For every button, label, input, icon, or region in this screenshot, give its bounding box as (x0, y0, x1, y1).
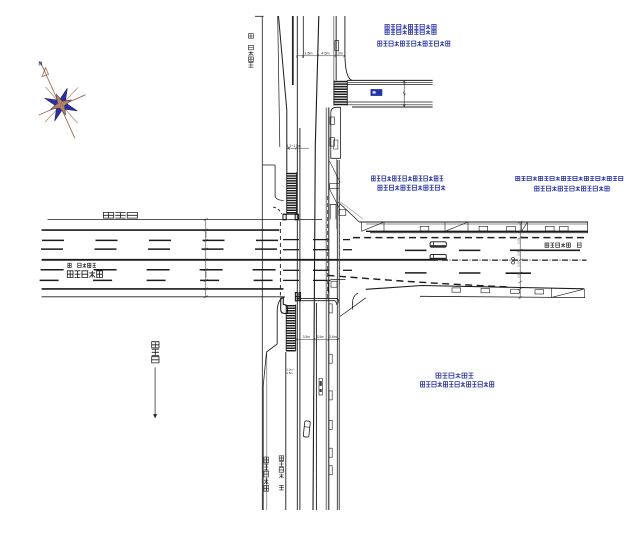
svg-text:2.0m: 2.0m (335, 51, 343, 55)
svg-text:4.5m: 4.5m (322, 51, 330, 55)
svg-text:3.25: 3.25 (204, 231, 208, 237)
svg-text:1.2~1.5m: 1.2~1.5m (287, 144, 301, 148)
svg-text:2.6m: 2.6m (329, 335, 337, 339)
svg-text:3.25: 3.25 (516, 261, 520, 267)
svg-text:3.25: 3.25 (204, 271, 208, 277)
svg-text:N: N (39, 62, 43, 68)
svg-text:1.5m: 1.5m (286, 371, 293, 375)
svg-text:3.25: 3.25 (516, 250, 520, 256)
svg-text:3.25: 3.25 (516, 272, 520, 278)
svg-text:3.5m: 3.5m (317, 335, 325, 339)
svg-text:3.25: 3.25 (516, 238, 520, 244)
svg-text:3.5m: 3.5m (303, 335, 311, 339)
svg-text:1.5m: 1.5m (305, 51, 313, 55)
